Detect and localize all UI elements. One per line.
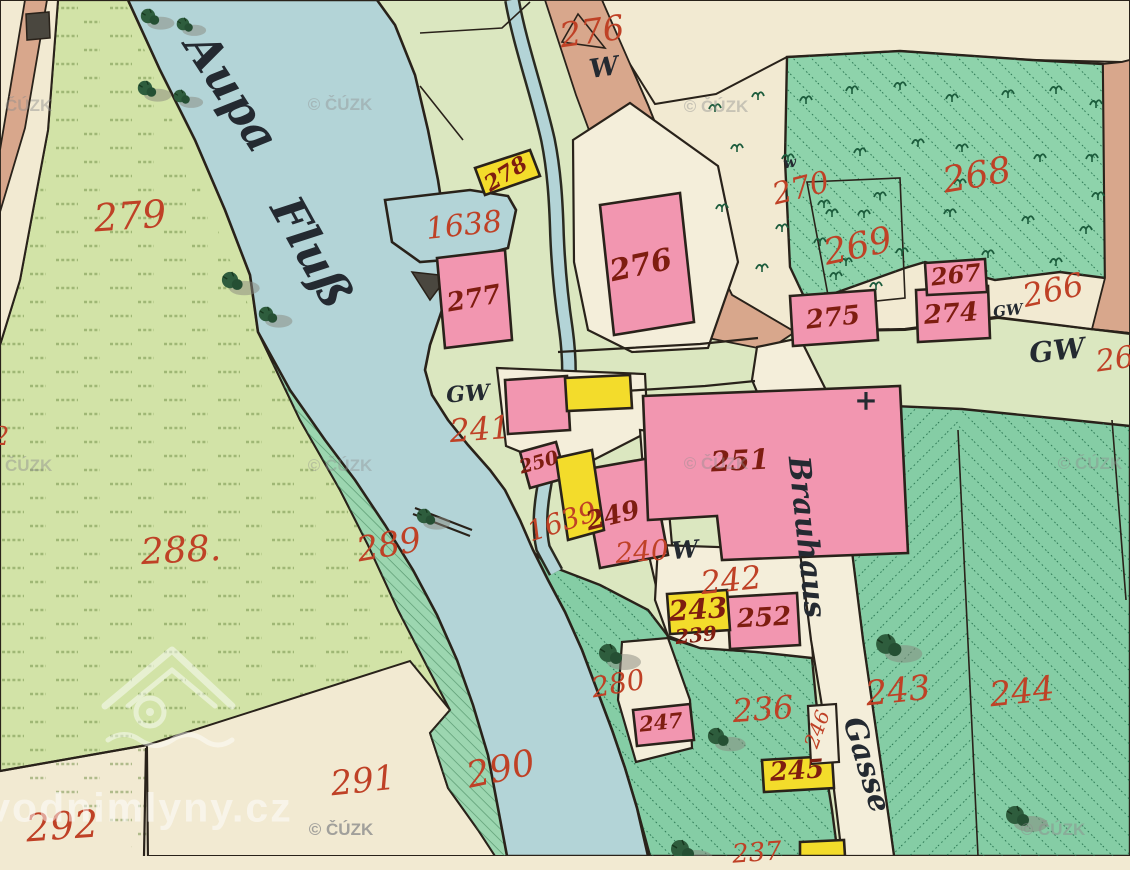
building-267-shape	[925, 259, 987, 295]
building-246-outline	[808, 704, 839, 764]
building-241-annex-shape	[565, 375, 632, 411]
cadastral-map: 279288.289290291292276270268269266163824…	[0, 0, 1130, 856]
meadow-244-hatch	[958, 409, 1130, 856]
building-276-shape	[600, 193, 694, 335]
building-243-shape	[667, 590, 730, 634]
structure-top-left	[26, 12, 50, 40]
building-bottom-edge-shape	[800, 840, 845, 856]
map-canvas	[0, 0, 1130, 856]
building-252-shape	[727, 593, 800, 649]
building-275-shape	[790, 290, 878, 346]
building-241-shape	[505, 376, 570, 434]
building-247-shape	[633, 704, 694, 746]
building-277-shape	[437, 250, 512, 348]
